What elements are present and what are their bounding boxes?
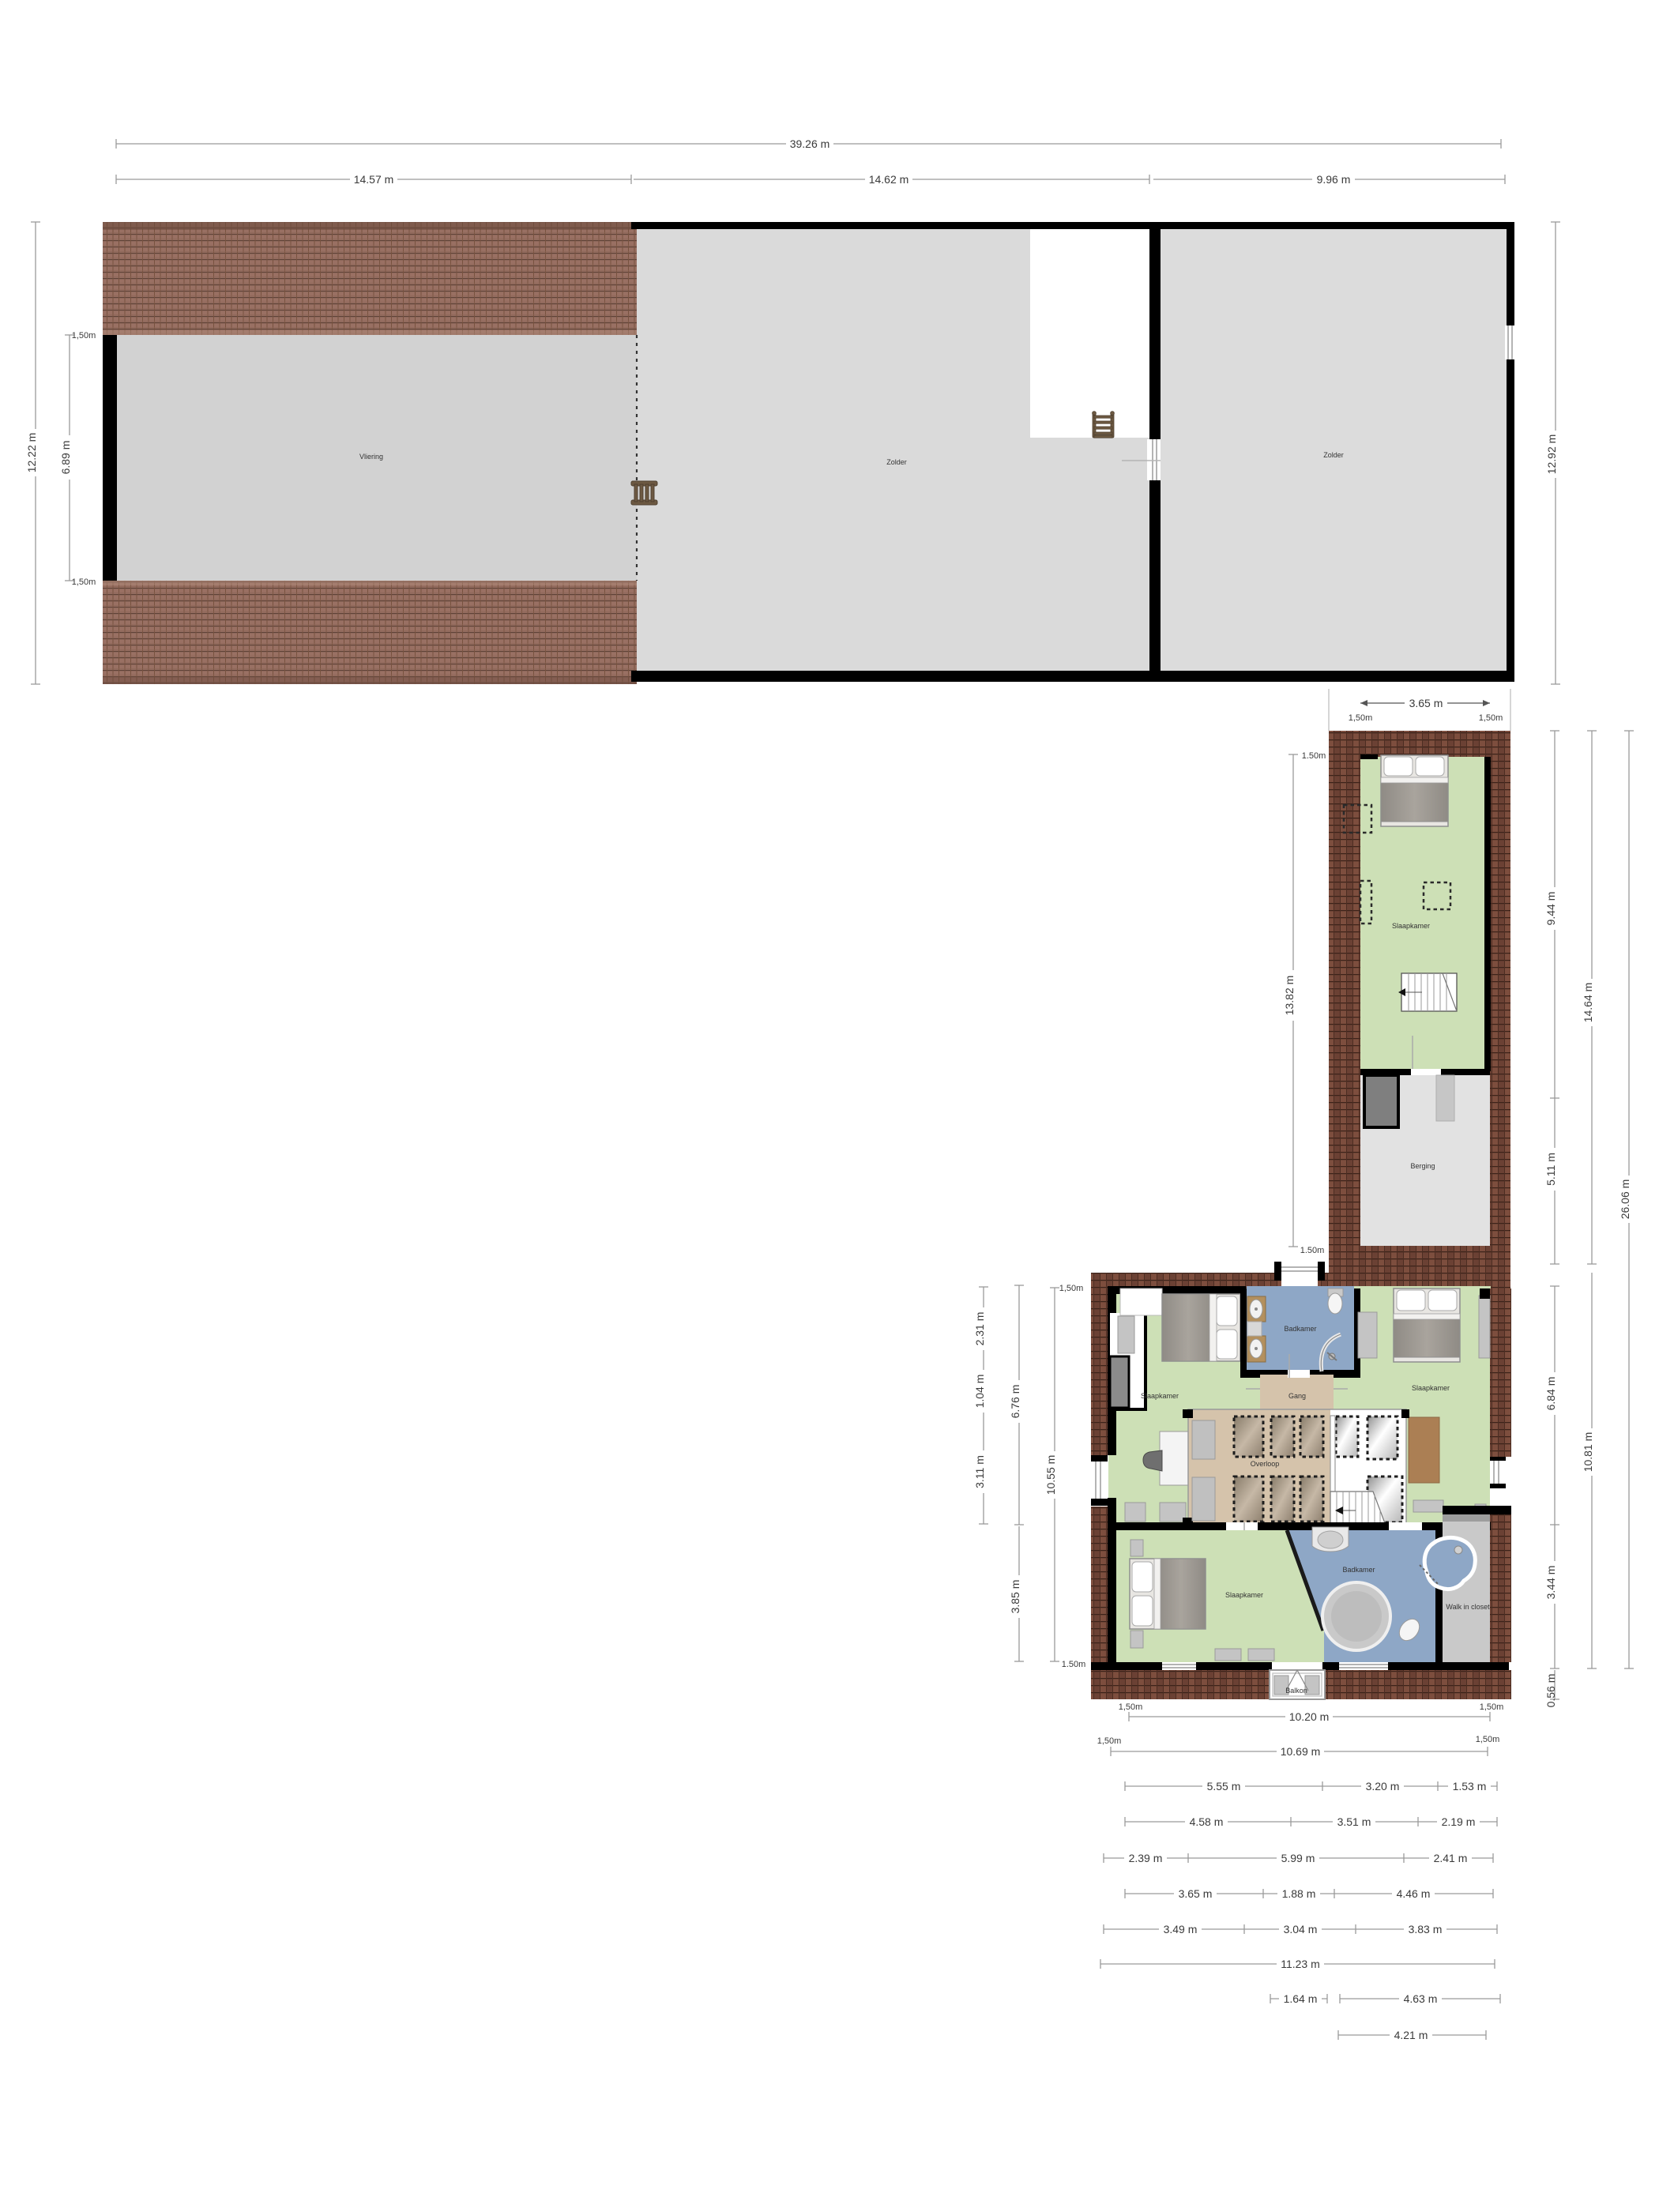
svg-text:1,50m: 1,50m	[1119, 1702, 1143, 1712]
svg-text:Walk in closet: Walk in closet	[1446, 1603, 1490, 1611]
svg-text:1.88 m: 1.88 m	[1282, 1887, 1316, 1900]
svg-text:2.39 m: 2.39 m	[1129, 1852, 1163, 1864]
svg-text:3.51 m: 3.51 m	[1337, 1815, 1371, 1828]
svg-text:1,50m: 1,50m	[1059, 1284, 1084, 1293]
svg-text:1.53 m: 1.53 m	[1453, 1780, 1487, 1793]
svg-text:10.20 m: 10.20 m	[1289, 1710, 1330, 1723]
svg-text:2.31 m: 2.31 m	[973, 1312, 986, 1346]
svg-text:4.46 m: 4.46 m	[1397, 1887, 1431, 1900]
svg-text:39.26 m: 39.26 m	[790, 137, 830, 150]
svg-text:6.76 m: 6.76 m	[1009, 1385, 1021, 1419]
svg-text:3.65 m: 3.65 m	[1179, 1887, 1213, 1900]
svg-text:5.55 m: 5.55 m	[1207, 1780, 1241, 1793]
svg-text:1.50m: 1.50m	[1300, 1246, 1325, 1255]
svg-text:6.89 m: 6.89 m	[59, 441, 72, 475]
svg-text:Zolder: Zolder	[886, 458, 907, 466]
svg-text:Zolder: Zolder	[1323, 451, 1344, 459]
svg-text:6.84 m: 6.84 m	[1544, 1377, 1557, 1411]
svg-text:3.11 m: 3.11 m	[973, 1455, 986, 1488]
svg-text:1,50m: 1,50m	[1476, 1735, 1500, 1744]
svg-text:10.69 m: 10.69 m	[1281, 1745, 1321, 1758]
svg-text:Badkamer: Badkamer	[1284, 1325, 1316, 1333]
svg-text:4.21 m: 4.21 m	[1394, 2029, 1428, 2041]
svg-text:14.64 m: 14.64 m	[1582, 983, 1594, 1023]
svg-text:Gang: Gang	[1288, 1392, 1306, 1400]
svg-text:4.58 m: 4.58 m	[1190, 1815, 1224, 1828]
svg-text:1,50m: 1,50m	[1480, 1702, 1504, 1712]
svg-text:1.50m: 1.50m	[1302, 751, 1326, 761]
svg-text:1.64 m: 1.64 m	[1284, 1992, 1318, 2005]
svg-text:3.44 m: 3.44 m	[1544, 1566, 1557, 1600]
svg-text:10.55 m: 10.55 m	[1044, 1455, 1057, 1495]
svg-text:Overloop: Overloop	[1251, 1460, 1280, 1468]
svg-text:9.44 m: 9.44 m	[1544, 892, 1557, 926]
svg-text:3.20 m: 3.20 m	[1366, 1780, 1400, 1793]
svg-text:3.83 m: 3.83 m	[1409, 1923, 1443, 1935]
svg-text:3.04 m: 3.04 m	[1284, 1923, 1318, 1935]
svg-text:14.62 m: 14.62 m	[869, 173, 909, 186]
svg-text:2.19 m: 2.19 m	[1442, 1815, 1476, 1828]
svg-text:Badkamer: Badkamer	[1342, 1566, 1375, 1574]
svg-text:1,50m: 1,50m	[1349, 713, 1373, 723]
svg-text:Slaapkamer: Slaapkamer	[1412, 1384, 1450, 1392]
svg-text:9.96 m: 9.96 m	[1317, 173, 1351, 186]
svg-text:Slaapkamer: Slaapkamer	[1225, 1591, 1263, 1599]
svg-text:3.49 m: 3.49 m	[1164, 1923, 1198, 1935]
svg-text:10.81 m: 10.81 m	[1582, 1432, 1594, 1473]
svg-text:Berging: Berging	[1410, 1162, 1435, 1170]
svg-text:1.04 m: 1.04 m	[973, 1375, 986, 1409]
svg-text:11.23 m: 11.23 m	[1281, 1958, 1320, 1970]
svg-text:Slaapkamer: Slaapkamer	[1141, 1392, 1179, 1400]
svg-text:4.63 m: 4.63 m	[1404, 1992, 1438, 2005]
svg-text:2.41 m: 2.41 m	[1434, 1852, 1468, 1864]
svg-text:3.65 m: 3.65 m	[1409, 697, 1443, 709]
svg-text:5.11 m: 5.11 m	[1544, 1153, 1557, 1186]
svg-text:0.56 m: 0.56 m	[1544, 1674, 1557, 1708]
svg-text:1,50m: 1,50m	[72, 577, 96, 587]
svg-text:1.50m: 1.50m	[1062, 1660, 1086, 1669]
svg-text:Vliering: Vliering	[359, 453, 383, 461]
svg-text:1,50m: 1,50m	[1097, 1736, 1122, 1746]
svg-text:1,50m: 1,50m	[1479, 713, 1503, 723]
svg-text:13.82 m: 13.82 m	[1283, 976, 1296, 1016]
svg-text:26.06 m: 26.06 m	[1619, 1179, 1631, 1220]
svg-text:Slaapkamer: Slaapkamer	[1392, 922, 1430, 930]
svg-text:12.92 m: 12.92 m	[1545, 434, 1558, 475]
svg-text:14.57 m: 14.57 m	[354, 173, 394, 186]
svg-text:5.99 m: 5.99 m	[1281, 1852, 1315, 1864]
svg-text:1,50m: 1,50m	[72, 331, 96, 340]
svg-text:12.22 m: 12.22 m	[25, 433, 38, 473]
svg-text:3.85 m: 3.85 m	[1009, 1580, 1021, 1614]
svg-text:Balkon: Balkon	[1285, 1687, 1307, 1695]
